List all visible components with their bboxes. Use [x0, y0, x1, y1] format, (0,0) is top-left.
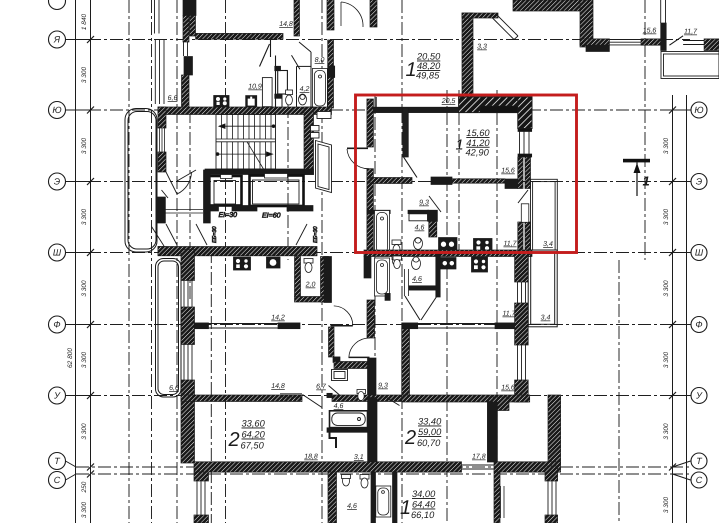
svg-text:11,7: 11,7 — [684, 29, 698, 36]
svg-text:3,1: 3,1 — [354, 454, 364, 461]
svg-text:3,3: 3,3 — [477, 44, 487, 51]
svg-text:15,6: 15,6 — [643, 28, 657, 35]
svg-text:С: С — [54, 475, 61, 485]
svg-text:250: 250 — [81, 481, 88, 493]
svg-text:1: 1 — [400, 497, 411, 519]
svg-text:64,20: 64,20 — [242, 430, 266, 440]
svg-text:60,70: 60,70 — [417, 438, 441, 448]
svg-text:Э: Э — [696, 177, 702, 187]
svg-text:3 300: 3 300 — [81, 208, 88, 225]
svg-text:3 300: 3 300 — [81, 351, 88, 368]
svg-text:EI=60: EI=60 — [262, 213, 281, 220]
svg-text:20,5: 20,5 — [441, 98, 456, 105]
svg-text:EI=30: EI=30 — [219, 212, 238, 219]
svg-text:ЕБ=30: ЕБ=30 — [313, 225, 319, 243]
svg-text:3 300: 3 300 — [81, 66, 88, 83]
svg-text:14,8: 14,8 — [271, 383, 285, 390]
svg-text:6,6: 6,6 — [169, 385, 179, 392]
svg-text:2: 2 — [404, 427, 416, 449]
svg-text:62 800: 62 800 — [67, 348, 74, 368]
svg-text:2: 2 — [228, 429, 240, 451]
svg-text:4,6: 4,6 — [412, 276, 422, 283]
svg-text:С: С — [696, 475, 703, 485]
svg-text:4,6: 4,6 — [334, 403, 344, 410]
svg-text:66,10: 66,10 — [411, 510, 435, 520]
svg-text:3 300: 3 300 — [663, 351, 670, 368]
svg-text:11,7: 11,7 — [503, 241, 517, 248]
svg-text:6,6: 6,6 — [168, 95, 178, 102]
svg-text:3 300: 3 300 — [81, 423, 88, 440]
svg-text:64,40: 64,40 — [412, 500, 436, 510]
svg-text:6,7: 6,7 — [316, 384, 327, 391]
svg-text:48,20: 48,20 — [417, 61, 441, 71]
svg-text:3 300: 3 300 — [81, 137, 88, 154]
svg-text:3 300: 3 300 — [81, 501, 88, 518]
svg-text:Ф: Ф — [53, 320, 60, 330]
svg-text:4,6: 4,6 — [415, 225, 425, 232]
svg-text:49,85: 49,85 — [416, 71, 440, 81]
svg-text:8,0: 8,0 — [315, 57, 325, 64]
svg-text:3,4: 3,4 — [543, 241, 553, 248]
svg-text:Ю: Ю — [694, 105, 703, 115]
svg-text:Ф: Ф — [695, 320, 702, 330]
svg-text:1 840: 1 840 — [81, 13, 88, 30]
svg-text:67,50: 67,50 — [241, 441, 265, 451]
svg-text:33,40: 33,40 — [418, 417, 442, 427]
svg-text:1: 1 — [643, 174, 650, 189]
svg-text:9,3: 9,3 — [419, 200, 429, 207]
svg-text:33,60: 33,60 — [242, 419, 266, 429]
svg-text:3 300: 3 300 — [663, 208, 670, 225]
svg-text:18,8: 18,8 — [304, 454, 318, 461]
svg-text:Я: Я — [53, 35, 61, 45]
svg-text:Э: Э — [54, 177, 60, 187]
svg-text:10,9: 10,9 — [248, 84, 262, 91]
svg-text:Ю: Ю — [52, 105, 61, 115]
svg-text:20,50: 20,50 — [416, 52, 441, 62]
svg-text:3 300: 3 300 — [663, 496, 670, 513]
svg-text:14,2: 14,2 — [271, 315, 285, 322]
svg-text:1: 1 — [406, 59, 417, 81]
svg-text:34,00: 34,00 — [412, 489, 436, 499]
svg-text:15,6: 15,6 — [501, 168, 515, 175]
svg-text:41,20: 41,20 — [466, 138, 490, 148]
svg-text:17,8: 17,8 — [472, 454, 486, 461]
svg-text:3 300: 3 300 — [81, 280, 88, 297]
svg-text:11,7: 11,7 — [502, 311, 516, 318]
svg-text:42,90: 42,90 — [466, 147, 490, 157]
svg-text:14,8: 14,8 — [279, 21, 293, 28]
svg-text:15,60: 15,60 — [466, 128, 490, 138]
svg-text:4,6: 4,6 — [347, 503, 357, 510]
svg-text:Ш: Ш — [53, 248, 62, 258]
svg-text:3 300: 3 300 — [663, 280, 670, 297]
svg-text:4,2: 4,2 — [300, 86, 310, 93]
svg-text:15,6: 15,6 — [501, 385, 515, 392]
svg-text:ЕБ=30: ЕБ=30 — [212, 225, 218, 243]
svg-text:3 300: 3 300 — [663, 137, 670, 154]
svg-text:59,00: 59,00 — [418, 427, 442, 437]
svg-text:3,4: 3,4 — [541, 315, 551, 322]
svg-text:3 300: 3 300 — [663, 423, 670, 440]
svg-text:2,0: 2,0 — [305, 282, 316, 289]
svg-text:1: 1 — [456, 138, 464, 154]
svg-text:9,3: 9,3 — [378, 383, 388, 390]
svg-text:Ш: Ш — [695, 248, 704, 258]
